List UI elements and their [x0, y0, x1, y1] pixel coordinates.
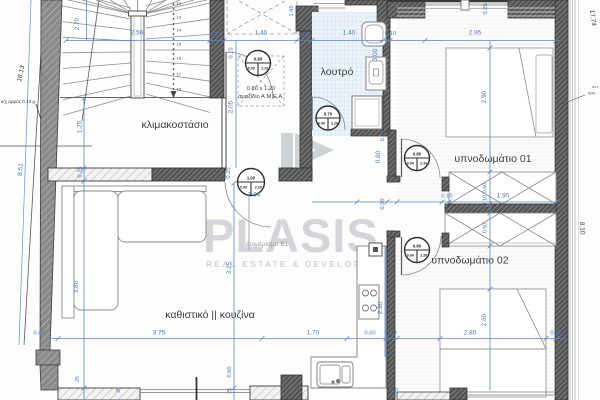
svg-text:0.25: 0.25 — [298, 32, 309, 38]
svg-text:13: 13 — [177, 15, 182, 20]
svg-text:1.90: 1.90 — [497, 193, 510, 200]
svg-text:αρμ.: αρμ. — [588, 90, 596, 95]
svg-text:καθιστικό || κουζίνα: καθιστικό || κουζίνα — [165, 309, 255, 321]
svg-text:14: 14 — [177, 28, 182, 33]
svg-text:3.80: 3.80 — [73, 280, 80, 293]
svg-text:16: 16 — [177, 56, 182, 61]
svg-text:κ/χ αρμός 0.10 μ.: κ/χ αρμός 0.10 μ. — [1, 98, 36, 104]
svg-text:0.00: 0.00 — [248, 67, 255, 71]
svg-text:λουτρό: λουτρό — [321, 66, 354, 78]
svg-text:0.90: 0.90 — [380, 198, 386, 209]
svg-text:2.20: 2.20 — [255, 186, 262, 190]
svg-text:1.25: 1.25 — [77, 120, 84, 133]
svg-text:8.10: 8.10 — [578, 222, 586, 235]
svg-text:0.25: 0.25 — [550, 331, 561, 337]
svg-text:2.70: 2.70 — [74, 17, 81, 30]
svg-text:2.20: 2.20 — [420, 254, 427, 258]
svg-text:Διαμέρισμα Β1: Διαμέρισμα Β1 — [246, 240, 289, 248]
svg-text:0.00: 0.00 — [407, 162, 414, 166]
svg-text:25: 25 — [227, 388, 233, 394]
svg-text:25: 25 — [75, 376, 81, 382]
svg-text:0.10: 0.10 — [385, 331, 396, 337]
svg-text:2.80: 2.80 — [464, 330, 477, 337]
svg-text:0.60: 0.60 — [483, 223, 489, 234]
svg-text:15: 15 — [177, 42, 182, 47]
svg-text:8.51: 8.51 — [17, 163, 25, 176]
svg-text:1.40: 1.40 — [255, 30, 268, 37]
svg-text:25: 25 — [394, 388, 400, 394]
svg-text:2.60: 2.60 — [481, 313, 488, 326]
svg-text:κλιμακοστάσιο: κλιμακοστάσιο — [141, 119, 208, 131]
svg-text:2.20: 2.20 — [331, 122, 338, 126]
svg-text:0.60: 0.60 — [227, 366, 233, 377]
svg-text:1.70: 1.70 — [307, 330, 320, 337]
svg-text:2.95: 2.95 — [469, 30, 482, 37]
svg-text:2.90: 2.90 — [481, 90, 488, 103]
svg-text:7.04: 7.04 — [248, 192, 261, 199]
svg-text:0.00: 0.00 — [240, 186, 247, 190]
svg-text:2.20: 2.20 — [261, 67, 268, 71]
svg-text:2.05: 2.05 — [228, 100, 235, 113]
svg-text:0.40: 0.40 — [33, 331, 44, 337]
svg-text:0.10: 0.10 — [441, 194, 452, 200]
svg-text:0.10: 0.10 — [385, 31, 396, 37]
svg-text:0.10: 0.10 — [380, 131, 386, 142]
svg-text:1.45: 1.45 — [289, 5, 295, 16]
svg-text:0.00: 0.00 — [407, 254, 414, 258]
svg-text:0.60: 0.60 — [483, 183, 489, 194]
svg-text:0.80: 0.80 — [413, 152, 422, 157]
svg-text:3.75: 3.75 — [153, 330, 166, 337]
svg-text:αμαξίδιο Α.Μ.Ε.Α.: αμαξίδιο Α.Μ.Ε.Α. — [238, 94, 284, 100]
svg-text:0.60: 0.60 — [364, 331, 375, 337]
svg-text:0.80: 0.80 — [413, 244, 422, 249]
svg-text:0.00: 0.00 — [318, 122, 325, 126]
svg-text:2.20: 2.20 — [420, 162, 427, 166]
svg-text:0.80 x 1.20: 0.80 x 1.20 — [247, 86, 276, 92]
svg-text:0.25: 0.25 — [226, 167, 232, 178]
svg-text:0.25: 0.25 — [210, 32, 221, 38]
svg-text:3.25: 3.25 — [226, 261, 233, 274]
svg-text:1.00: 1.00 — [247, 176, 256, 181]
svg-text:0.90: 0.90 — [254, 57, 263, 62]
svg-text:0.70: 0.70 — [324, 112, 333, 117]
svg-text:0.80: 0.80 — [375, 150, 382, 163]
svg-text:12: 12 — [177, 1, 182, 6]
svg-text:0.25: 0.25 — [483, 3, 489, 14]
svg-text:PLASIS: PLASIS — [203, 209, 379, 262]
svg-text:2.56: 2.56 — [131, 30, 144, 37]
svg-text:αντ.: αντ. — [592, 84, 599, 89]
svg-text:0.25: 0.25 — [78, 166, 84, 177]
svg-text:υπνοδωμάτιο 02: υπνοδωμάτιο 02 — [431, 255, 508, 267]
svg-text:υπνοδωμάτιο 01: υπνοδωμάτιο 01 — [454, 153, 531, 165]
svg-text:0.10: 0.10 — [483, 195, 489, 206]
svg-text:2.90: 2.90 — [377, 301, 384, 314]
svg-text:25: 25 — [116, 387, 122, 393]
svg-text:1.40: 1.40 — [343, 30, 356, 37]
svg-text:3.00: 3.00 — [372, 48, 379, 61]
svg-text:17: 17 — [177, 72, 182, 77]
svg-text:0.10: 0.10 — [229, 47, 235, 58]
svg-text:18: 18 — [177, 87, 182, 92]
